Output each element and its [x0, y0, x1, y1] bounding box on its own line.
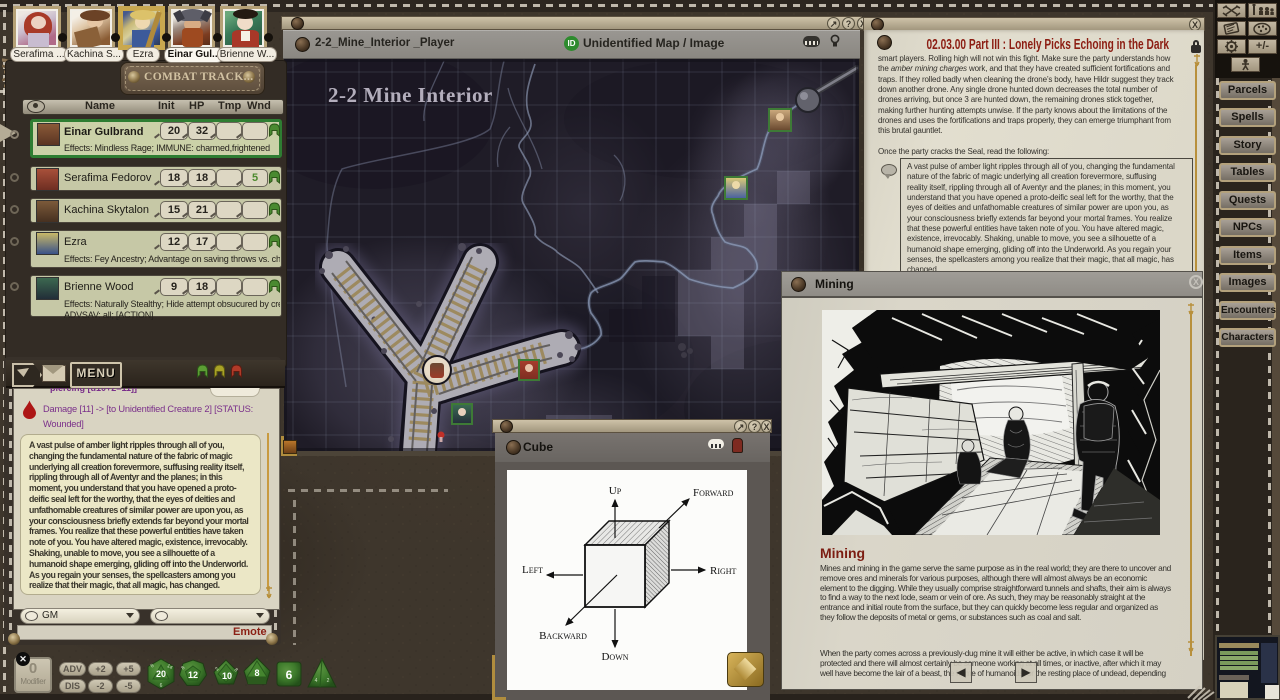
svg-text:2: 2	[327, 678, 330, 684]
svg-text:4: 4	[315, 678, 318, 684]
svg-text:Backward: Backward	[539, 630, 587, 642]
svg-text:6: 6	[160, 683, 163, 689]
svg-text:Up: Up	[609, 485, 622, 497]
svg-text:6: 6	[286, 668, 293, 682]
svg-text:Left: Left	[522, 564, 543, 576]
svg-text:Forward: Forward	[693, 487, 734, 499]
svg-text:Down: Down	[601, 651, 628, 663]
svg-text:12: 12	[188, 670, 198, 680]
svg-text:Right: Right	[710, 565, 737, 577]
svg-text:20: 20	[156, 669, 166, 679]
svg-text:8: 8	[254, 668, 259, 678]
svg-text:10: 10	[222, 671, 232, 681]
